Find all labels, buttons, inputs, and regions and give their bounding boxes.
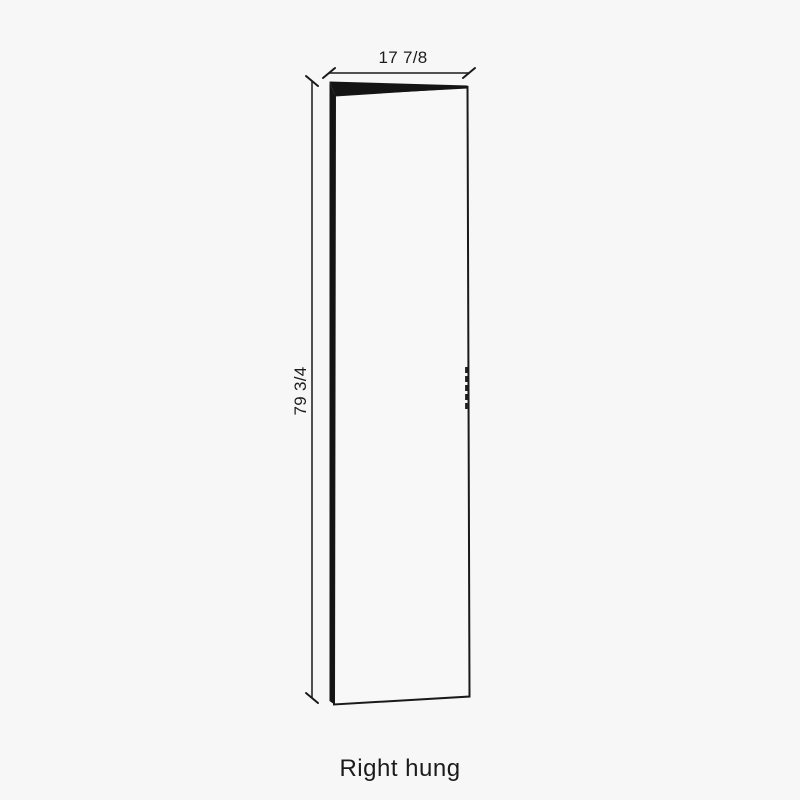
height-dimension-label: 79 3/4 [291,351,311,431]
hinge-side-caption: Right hung [0,755,800,783]
door-drawing [0,0,800,800]
width-dimension [323,68,475,78]
door-face [334,87,470,705]
door-left-edge [330,82,336,705]
width-dimension-label: 17 7/8 [333,48,473,68]
door-diagram-canvas: 17 7/8 79 3/4 Right hung [0,0,800,800]
